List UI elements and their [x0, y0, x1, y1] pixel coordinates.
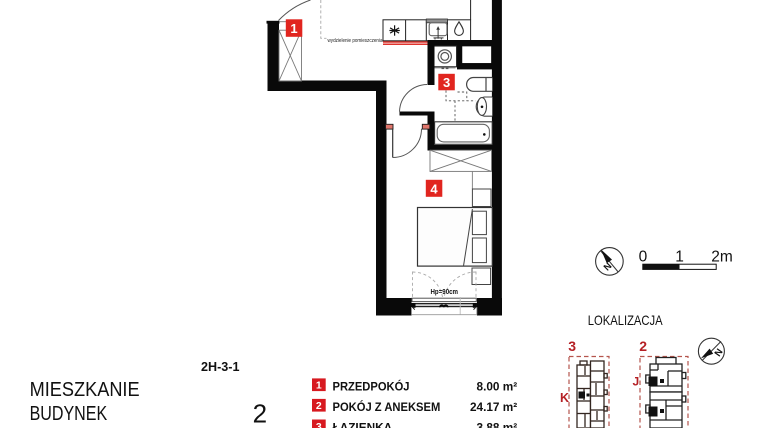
- svg-text:3: 3: [443, 75, 450, 90]
- svg-text:ŁAZIENKA: ŁAZIENKA: [333, 420, 393, 428]
- svg-text:LOKALIZACJA: LOKALIZACJA: [588, 312, 663, 328]
- svg-text:3: 3: [568, 338, 576, 354]
- svg-text:2: 2: [253, 399, 267, 428]
- svg-text:BUDYNEK: BUDYNEK: [30, 403, 108, 425]
- svg-text:2m: 2m: [711, 249, 733, 266]
- svg-text:4: 4: [430, 181, 438, 196]
- svg-text:0: 0: [639, 249, 648, 266]
- svg-text:1: 1: [675, 249, 684, 266]
- svg-text:8.00 m²: 8.00 m²: [477, 379, 518, 393]
- svg-text:PRZEDPOKÓJ: PRZEDPOKÓJ: [333, 379, 410, 393]
- svg-text:1: 1: [316, 380, 322, 392]
- svg-text:2H-3-1: 2H-3-1: [201, 360, 240, 374]
- svg-text:K: K: [560, 391, 569, 405]
- svg-text:3.88 m²: 3.88 m²: [477, 420, 518, 428]
- svg-text:3: 3: [316, 421, 322, 428]
- svg-text:2: 2: [316, 400, 322, 412]
- svg-text:POKÓJ Z ANEKSEM: POKÓJ Z ANEKSEM: [333, 400, 441, 414]
- svg-text:2: 2: [639, 338, 647, 354]
- svg-text:wydzielenie pomieszczenia: wydzielenie pomieszczenia: [327, 38, 383, 44]
- svg-text:Hp=90cm: Hp=90cm: [431, 289, 459, 296]
- svg-text:24.17 m²: 24.17 m²: [470, 400, 517, 414]
- svg-text:J: J: [633, 375, 640, 389]
- svg-text:1: 1: [290, 21, 297, 36]
- svg-text:MIESZKANIE: MIESZKANIE: [30, 379, 140, 401]
